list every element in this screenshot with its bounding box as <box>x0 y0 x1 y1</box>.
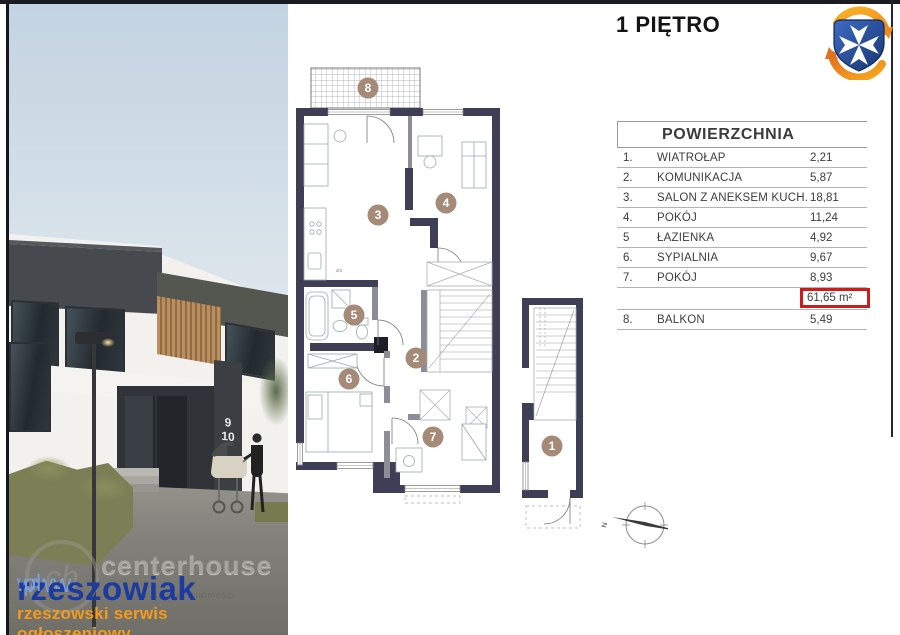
row-name: ŁAZIENKA <box>657 232 810 244</box>
row-area: 4,92 <box>810 232 867 244</box>
svg-text:7: 7 <box>430 430 437 444</box>
row-name: KOMUNIKACJA <box>657 172 810 184</box>
room-marker-1: 1 <box>542 436 563 457</box>
stairs-main <box>420 262 492 428</box>
house-photo: 9 10 ch centerhouse wwwrzeszo <box>6 4 288 635</box>
row-name: WIATROŁAP <box>657 152 810 164</box>
rzeszow-crest-logo <box>823 6 895 80</box>
table-row: 1. WIATROŁAP 2,21 <box>617 148 867 168</box>
row-area: 9,67 <box>810 252 867 264</box>
table-row: 3. SALON Z ANEKSEM KUCH. 18,81 <box>617 188 867 208</box>
pedestrian-with-stroller <box>207 428 271 522</box>
terrace-dashed <box>405 496 460 503</box>
room-marker-7: 7 <box>423 427 444 448</box>
room-marker-5: 5 <box>344 305 365 326</box>
compass-n-label: N <box>601 522 609 529</box>
service-tagline: rzeszowski serwis ogłoszeniowy <box>17 604 285 635</box>
row-area: 5,87 <box>810 172 867 184</box>
row-area: 8,93 <box>810 272 867 284</box>
entrance-door <box>157 396 187 488</box>
row-area: 2,21 <box>810 152 867 164</box>
row-number: 3. <box>617 192 657 204</box>
row-number: 4. <box>617 212 657 224</box>
area-table: POWIERZCHNIA 1. WIATROŁAP 2,21 2. KOMUNI… <box>617 121 867 330</box>
svg-text:1: 1 <box>549 439 556 453</box>
room-marker-4: 4 <box>436 193 457 214</box>
row-number: 7. <box>617 272 657 284</box>
row-number: 8. <box>617 314 657 326</box>
stairs-entrance <box>534 308 576 420</box>
row-name: SYPIALNIA <box>657 252 810 264</box>
row-number: 6. <box>617 252 657 264</box>
row-area: 5,49 <box>810 314 867 326</box>
row-name: BALKON <box>657 314 810 326</box>
svg-text:2: 2 <box>413 351 420 365</box>
balcony-row: 8. BALKON 5,49 <box>617 310 867 330</box>
room-marker-3: 3 <box>368 205 389 226</box>
row-name: POKÓJ <box>657 272 810 284</box>
svg-text:6: 6 <box>346 372 353 386</box>
grass-tuft <box>27 456 71 482</box>
url-brand: rzeszowiak <box>17 570 196 608</box>
total-row: 61,65 m² <box>617 288 867 310</box>
floor-plan-svg: zm <box>288 58 668 583</box>
table-row: 5 ŁAZIENKA 4,92 <box>617 228 867 248</box>
row-area: 18,81 <box>810 192 867 204</box>
area-table-title: POWIERZCHNIA <box>617 121 867 148</box>
row-number: 1. <box>617 152 657 164</box>
kitchen-note: zm <box>336 268 342 273</box>
table-row: 4. POKÓJ 11,24 <box>617 208 867 228</box>
room-marker-8: 8 <box>358 78 379 99</box>
svg-text:3: 3 <box>375 208 382 222</box>
row-number: 5 <box>617 232 657 244</box>
lamp-glow <box>101 338 115 347</box>
floor-title: 1 PIĘTRO <box>616 12 720 38</box>
north-compass: N <box>601 502 668 548</box>
room-marker-6: 6 <box>339 369 360 390</box>
svg-text:4: 4 <box>443 196 450 210</box>
row-area: 11,24 <box>810 212 867 224</box>
svg-text:5: 5 <box>351 308 358 322</box>
table-row: 2. KOMUNIKACJA 5,87 <box>617 168 867 188</box>
table-row: 7. POKÓJ 8,93 <box>617 268 867 288</box>
row-number: 2. <box>617 172 657 184</box>
grass-tuft <box>79 474 129 502</box>
wood-slats <box>157 296 221 365</box>
entrance-section <box>522 298 583 528</box>
tree <box>259 356 288 426</box>
room-marker-2: 2 <box>406 348 427 369</box>
row-name: POKÓJ <box>657 212 810 224</box>
row-name: SALON Z ANEKSEM KUCH. <box>657 192 810 204</box>
table-row: 6. SYPIALNIA 9,67 <box>617 248 867 268</box>
svg-text:8: 8 <box>365 81 372 95</box>
window <box>9 342 51 432</box>
page-canvas: 9 10 ch centerhouse wwwrzeszo <box>0 0 900 635</box>
total-area-box: 61,65 m² <box>800 288 870 308</box>
url-tld: .pl <box>17 570 41 597</box>
